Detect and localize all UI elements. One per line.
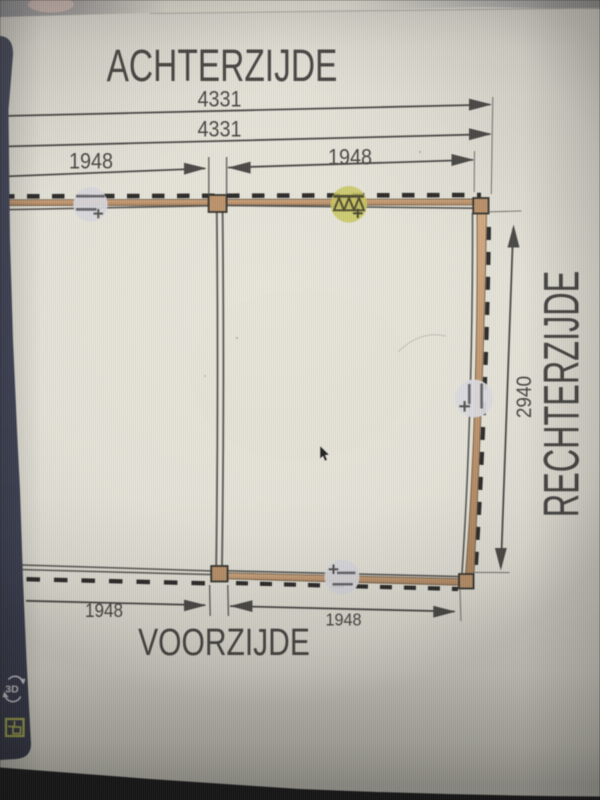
svg-text:RECHTERZIJDE: RECHTERZIJDE xyxy=(533,271,589,518)
svg-text:4331: 4331 xyxy=(197,88,241,112)
svg-text:3D: 3D xyxy=(5,684,19,696)
svg-text:2940: 2940 xyxy=(513,376,536,418)
svg-text:1948: 1948 xyxy=(85,600,123,621)
svg-text:1948: 1948 xyxy=(69,150,113,174)
svg-text:VOORZIJDE: VOORZIJDE xyxy=(138,622,310,664)
svg-text:ACHTERZIJDE: ACHTERZIJDE xyxy=(107,41,338,91)
svg-text:4331: 4331 xyxy=(197,118,241,142)
svg-text:1948: 1948 xyxy=(328,146,372,170)
svg-text:1948: 1948 xyxy=(325,610,361,630)
